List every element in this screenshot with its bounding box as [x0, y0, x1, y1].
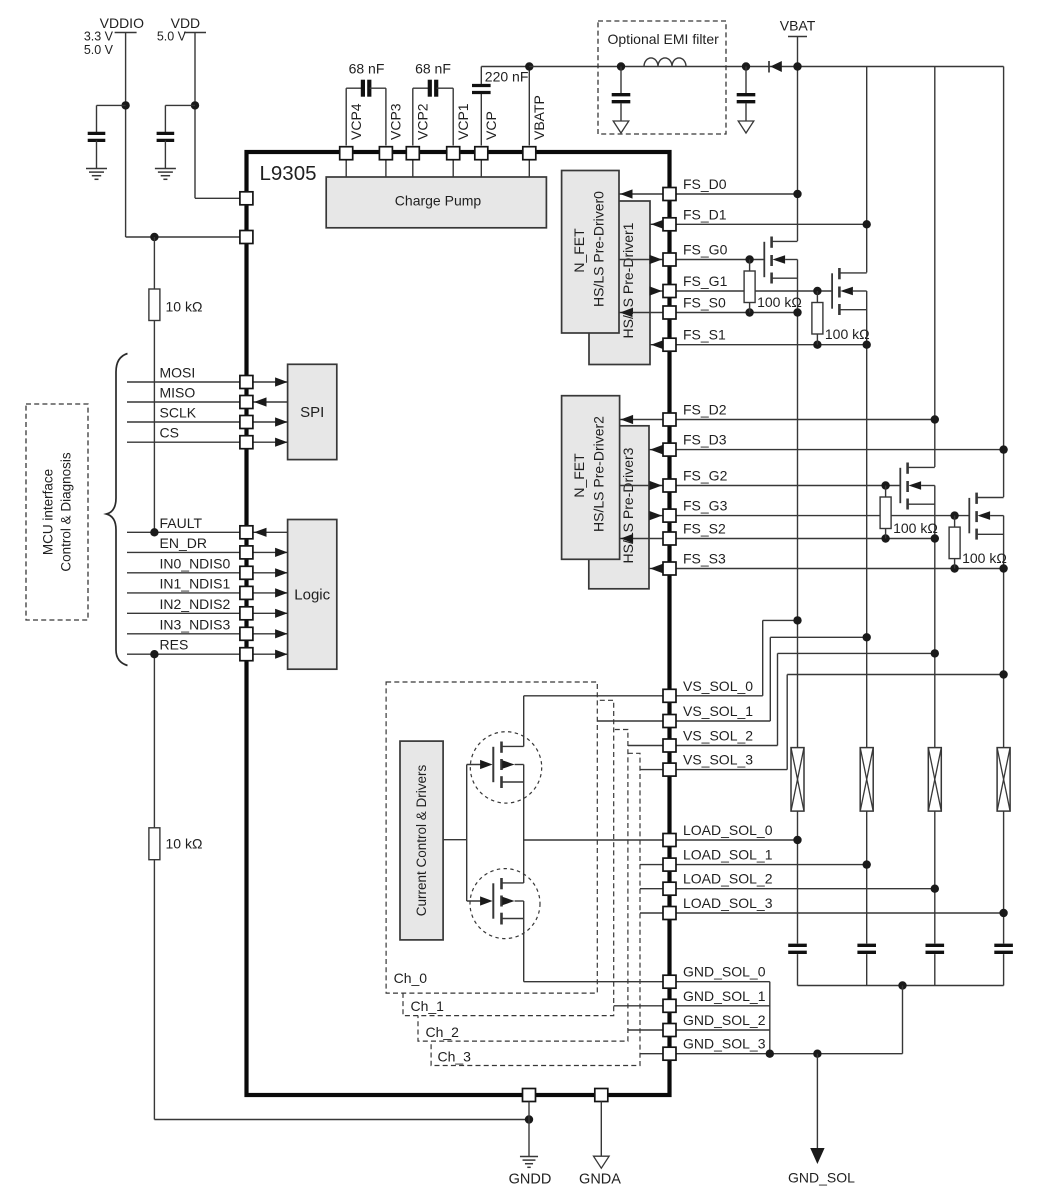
svg-text:EN_DR: EN_DR [160, 535, 207, 551]
svg-text:100 kΩ: 100 kΩ [893, 520, 938, 536]
svg-text:VCP4: VCP4 [348, 103, 364, 140]
svg-text:VCP: VCP [483, 111, 499, 140]
svg-text:VS_SOL_2: VS_SOL_2 [683, 728, 753, 744]
svg-text:FS_G3: FS_G3 [683, 498, 728, 514]
svg-text:VS_SOL_1: VS_SOL_1 [683, 703, 753, 719]
svg-text:GND_SOL: GND_SOL [788, 1170, 855, 1186]
svg-text:FS_S0: FS_S0 [683, 295, 726, 311]
svg-text:SPI: SPI [300, 404, 324, 421]
svg-text:FS_D0: FS_D0 [683, 176, 727, 192]
svg-text:VS_SOL_3: VS_SOL_3 [683, 752, 753, 768]
svg-text:220 nF: 220 nF [485, 68, 529, 84]
svg-text:FS_G0: FS_G0 [683, 242, 728, 258]
svg-text:N_FET: N_FET [571, 453, 587, 498]
svg-text:FS_S3: FS_S3 [683, 551, 726, 567]
svg-text:Current Control & Drivers: Current Control & Drivers [414, 764, 429, 916]
svg-text:FS_G2: FS_G2 [683, 468, 728, 484]
svg-text:HS/LS Pre-Driver2: HS/LS Pre-Driver2 [590, 416, 606, 532]
svg-text:68 nF: 68 nF [415, 61, 451, 77]
svg-text:5.0 V: 5.0 V [84, 43, 114, 57]
svg-text:CS: CS [160, 425, 179, 441]
svg-text:FS_D3: FS_D3 [683, 432, 727, 448]
svg-text:HS/LS Pre-Driver0: HS/LS Pre-Driver0 [590, 191, 606, 307]
svg-text:VBAT: VBAT [780, 18, 816, 34]
svg-text:FS_S1: FS_S1 [683, 327, 726, 343]
svg-text:RES: RES [160, 637, 189, 653]
svg-text:GND_SOL_1: GND_SOL_1 [683, 988, 766, 1004]
svg-text:MISO: MISO [160, 385, 196, 401]
svg-text:L9305: L9305 [260, 162, 317, 185]
svg-text:Ch_0: Ch_0 [394, 970, 428, 986]
svg-text:100 kΩ: 100 kΩ [962, 550, 1007, 566]
svg-text:GNDA: GNDA [579, 1172, 621, 1188]
svg-text:LOAD_SOL_1: LOAD_SOL_1 [683, 847, 773, 863]
svg-text:LOAD_SOL_2: LOAD_SOL_2 [683, 871, 773, 887]
svg-text:68 nF: 68 nF [349, 61, 385, 77]
svg-text:10 kΩ: 10 kΩ [166, 836, 203, 852]
svg-text:VBATP: VBATP [531, 95, 547, 140]
svg-text:MOSI: MOSI [160, 365, 196, 381]
svg-text:Ch_1: Ch_1 [411, 998, 445, 1014]
svg-text:FS_S2: FS_S2 [683, 521, 726, 537]
svg-text:10 kΩ: 10 kΩ [166, 299, 203, 315]
svg-text:GND_SOL_0: GND_SOL_0 [683, 964, 766, 980]
svg-text:FAULT: FAULT [160, 515, 203, 531]
svg-text:Control & Diagnosis: Control & Diagnosis [59, 452, 74, 572]
svg-text:IN0_NDIS0: IN0_NDIS0 [160, 555, 231, 571]
svg-text:FS_D1: FS_D1 [683, 206, 727, 222]
svg-text:5.0 V: 5.0 V [157, 30, 187, 44]
svg-text:IN1_NDIS1: IN1_NDIS1 [160, 575, 231, 591]
svg-text:FS_D2: FS_D2 [683, 402, 727, 418]
svg-text:SCLK: SCLK [160, 405, 197, 421]
svg-text:HS/LS Pre-Driver1: HS/LS Pre-Driver1 [620, 222, 636, 338]
svg-text:Logic: Logic [294, 587, 330, 604]
svg-text:LOAD_SOL_3: LOAD_SOL_3 [683, 895, 773, 911]
svg-text:GNDD: GNDD [509, 1172, 552, 1188]
svg-text:IN3_NDIS3: IN3_NDIS3 [160, 616, 231, 632]
svg-text:3.3 V: 3.3 V [84, 30, 114, 44]
svg-text:VCP2: VCP2 [415, 103, 431, 140]
svg-text:VCP3: VCP3 [388, 103, 404, 140]
svg-text:MCU interface: MCU interface [41, 469, 56, 555]
svg-text:GND_SOL_2: GND_SOL_2 [683, 1012, 766, 1028]
svg-text:HS/LS Pre-Driver3: HS/LS Pre-Driver3 [620, 447, 636, 563]
svg-text:100 kΩ: 100 kΩ [825, 326, 870, 342]
svg-text:N_FET: N_FET [571, 228, 587, 273]
svg-text:LOAD_SOL_0: LOAD_SOL_0 [683, 822, 773, 838]
svg-text:GND_SOL_3: GND_SOL_3 [683, 1036, 766, 1052]
svg-text:Optional EMI filter: Optional EMI filter [608, 31, 720, 47]
svg-text:Ch_2: Ch_2 [426, 1024, 460, 1040]
svg-text:FS_G1: FS_G1 [683, 273, 728, 289]
svg-text:Charge Pump: Charge Pump [395, 193, 482, 209]
svg-text:VS_SOL_0: VS_SOL_0 [683, 678, 753, 694]
svg-text:VCP1: VCP1 [455, 103, 471, 140]
svg-text:Ch_3: Ch_3 [438, 1049, 472, 1065]
svg-text:IN2_NDIS2: IN2_NDIS2 [160, 596, 231, 612]
svg-text:100 kΩ: 100 kΩ [757, 294, 802, 310]
